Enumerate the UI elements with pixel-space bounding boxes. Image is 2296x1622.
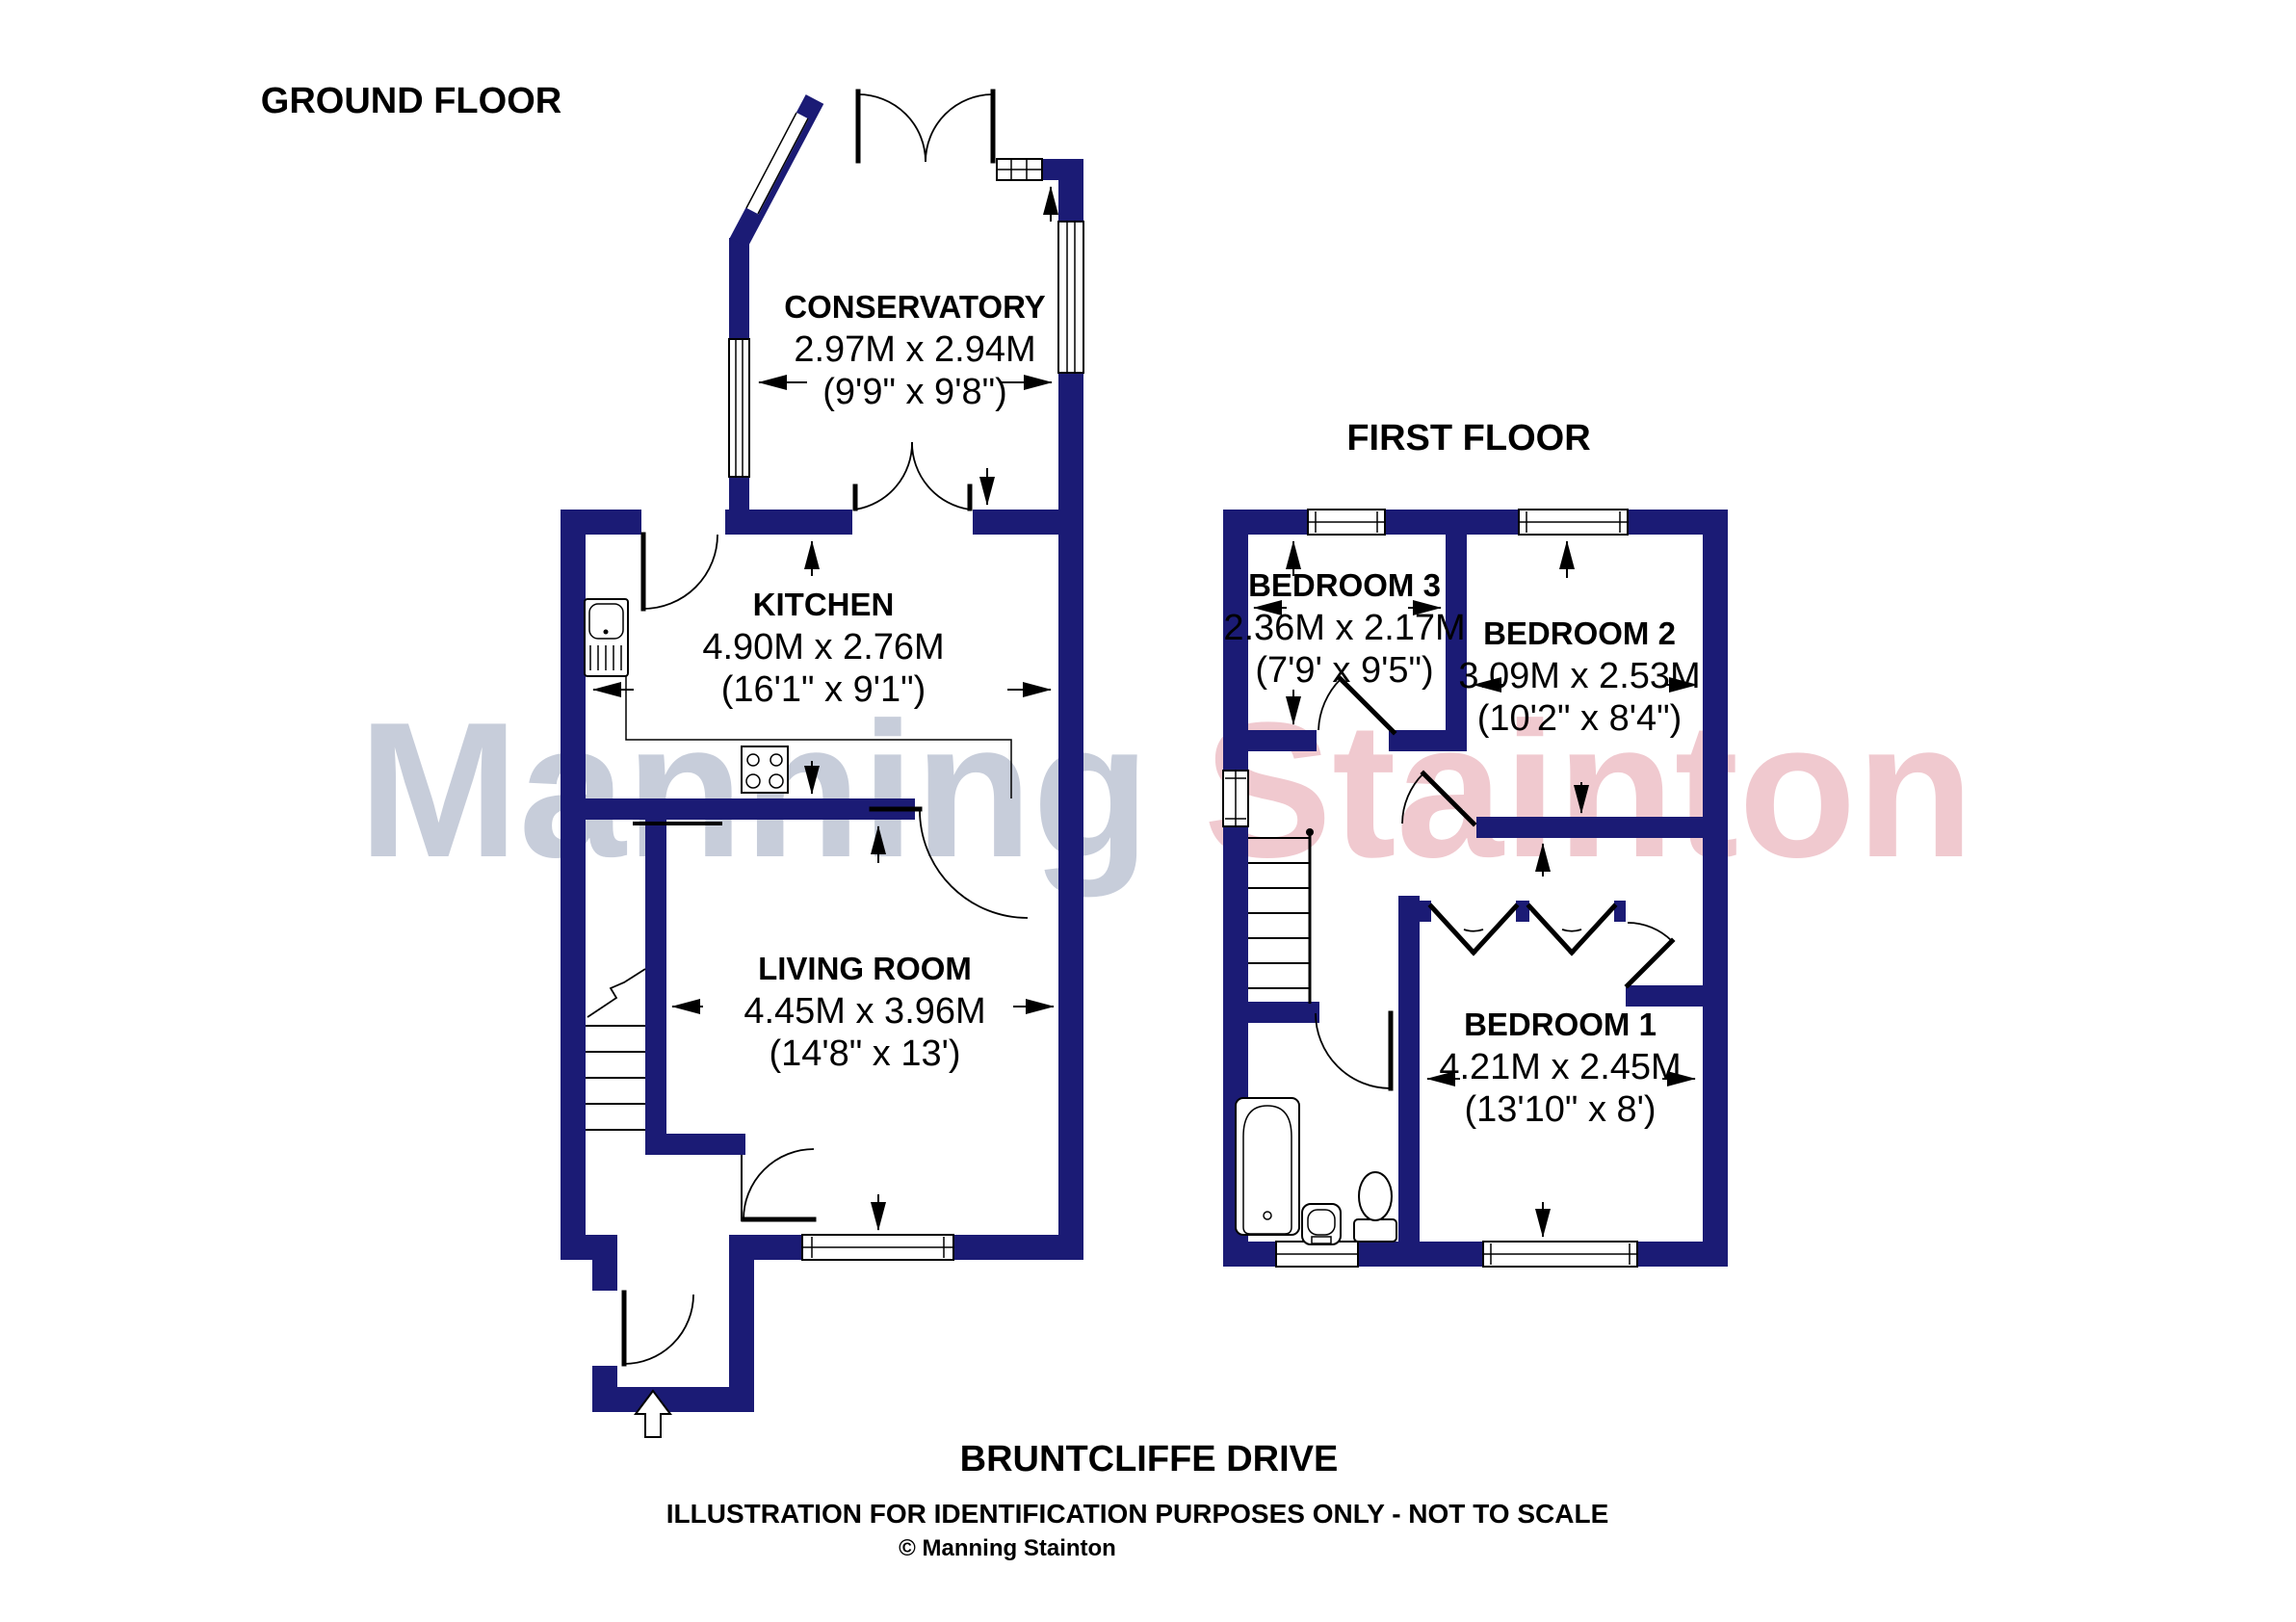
landing-window <box>1223 771 1248 826</box>
bedroom2-metric: 3.09M x 2.53M <box>1458 655 1700 697</box>
floorplan-page: Manning Stainton <box>0 0 2296 1622</box>
bedroom3-window <box>1308 510 1385 535</box>
conservatory-label: CONSERVATORY 2.97M x 2.94M (9'9" x 9'8") <box>784 286 1045 413</box>
conservatory-left-window <box>729 339 749 477</box>
bedroom1-window <box>1483 1242 1637 1267</box>
bedroom3-name: BEDROOM 3 <box>1223 564 1465 607</box>
bedroom2-label: BEDROOM 2 3.09M x 2.53M (10'2" x 8'4") <box>1458 613 1700 740</box>
kitchen-metric: 4.90M x 2.76M <box>702 626 944 668</box>
conservatory-name: CONSERVATORY <box>784 286 1045 328</box>
kitchen-living-door <box>872 809 1028 918</box>
bedroom1-name: BEDROOM 1 <box>1439 1004 1681 1046</box>
conservatory-right-window <box>1058 222 1083 373</box>
living-room-name: LIVING ROOM <box>744 948 985 990</box>
copyright-text: © Manning Stainton <box>899 1535 1116 1562</box>
bedroom2-door <box>1402 773 1474 824</box>
living-room-label: LIVING ROOM 4.45M x 3.96M (14'8" x 13') <box>744 948 985 1075</box>
first-floor-title: FIRST FLOOR <box>1346 418 1590 459</box>
conservatory-top-doors <box>858 92 993 162</box>
bedroom3-metric: 2.36M x 2.17M <box>1223 607 1465 649</box>
first-stairs <box>1248 828 1314 1004</box>
living-room-imperial: (14'8" x 13') <box>744 1033 985 1075</box>
bedroom2-imperial: (10'2" x 8'4") <box>1458 697 1700 740</box>
conservatory-imperial: (9'9" x 9'8") <box>784 371 1045 413</box>
stove-icon <box>742 746 788 793</box>
front-door <box>590 1291 693 1366</box>
street-name: BRUNTCLIFFE DRIVE <box>960 1439 1339 1480</box>
living-room-metric: 4.45M x 3.96M <box>744 990 985 1033</box>
kitchen-sink <box>585 599 628 676</box>
floorplan-drawing <box>0 0 2296 1622</box>
conservatory-kitchen-doors <box>855 442 970 510</box>
bedroom1-door <box>1628 923 1672 985</box>
bedroom2-window <box>1519 510 1628 535</box>
kitchen-label: KITCHEN 4.90M x 2.76M (16'1" x 9'1") <box>702 584 944 711</box>
toilet-icon <box>1354 1172 1396 1242</box>
disclaimer-text: ILLUSTRATION FOR IDENTIFICATION PURPOSES… <box>666 1499 1608 1530</box>
bathtub-icon <box>1236 1098 1299 1235</box>
bedroom3-label: BEDROOM 3 2.36M x 2.17M (7'9' x 9'5") <box>1223 564 1465 692</box>
bedroom1-imperial: (13'10" x 8') <box>1439 1088 1681 1131</box>
living-room-window <box>802 1235 953 1260</box>
bedroom1-metric: 4.21M x 2.45M <box>1439 1046 1681 1088</box>
living-hall-door <box>742 1149 814 1221</box>
kitchen-name: KITCHEN <box>702 584 944 626</box>
conservatory-diagonal-window <box>746 113 808 214</box>
conservatory-metric: 2.97M x 2.94M <box>784 328 1045 371</box>
bathroom-door <box>1316 1013 1391 1088</box>
sink-icon <box>1302 1204 1341 1244</box>
ground-floor-title: GROUND FLOOR <box>261 81 561 122</box>
kitchen-imperial: (16'1" x 9'1") <box>702 668 944 711</box>
bedroom1-label: BEDROOM 1 4.21M x 2.45M (13'10" x 8') <box>1439 1004 1681 1131</box>
ground-stairs <box>586 969 645 1130</box>
bedroom3-imperial: (7'9' x 9'5") <box>1223 649 1465 692</box>
bedroom2-name: BEDROOM 2 <box>1458 613 1700 655</box>
conservatory-top-window <box>997 159 1042 180</box>
